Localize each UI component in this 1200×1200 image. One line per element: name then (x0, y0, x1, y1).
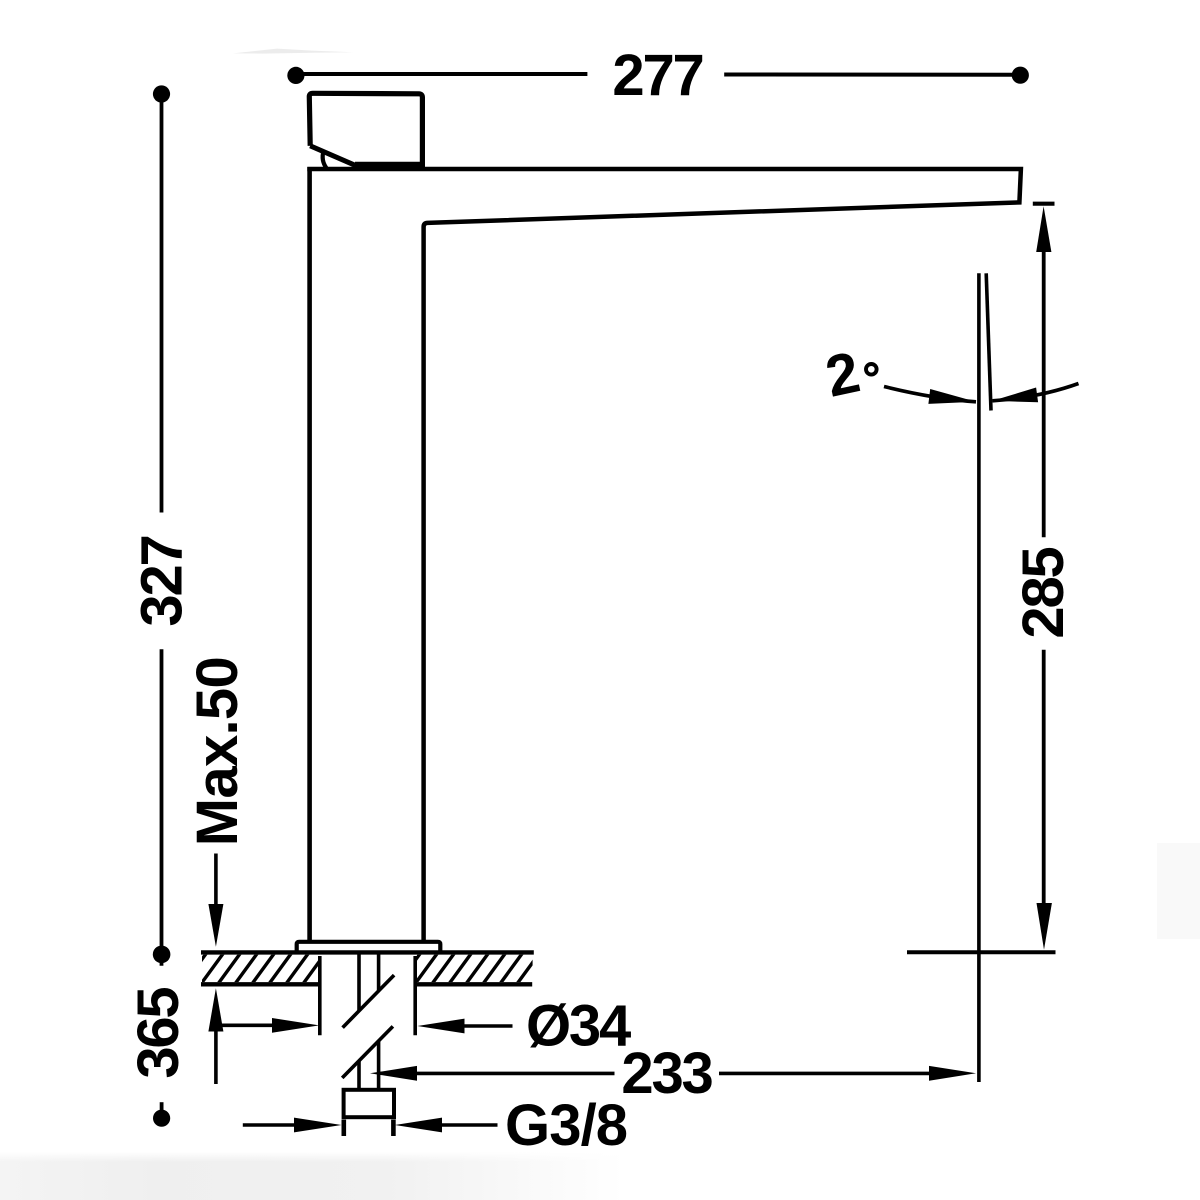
svg-text:285: 285 (1011, 547, 1076, 638)
svg-text:Ø34: Ø34 (526, 994, 631, 1059)
svg-text:277: 277 (612, 43, 702, 108)
svg-text:G3/8: G3/8 (505, 1093, 627, 1158)
svg-text:233: 233 (621, 1041, 712, 1106)
svg-text:2: 2 (820, 340, 863, 410)
svg-text:327: 327 (130, 536, 195, 626)
svg-text:365: 365 (126, 988, 191, 1079)
svg-text:Max.50: Max.50 (185, 657, 250, 846)
